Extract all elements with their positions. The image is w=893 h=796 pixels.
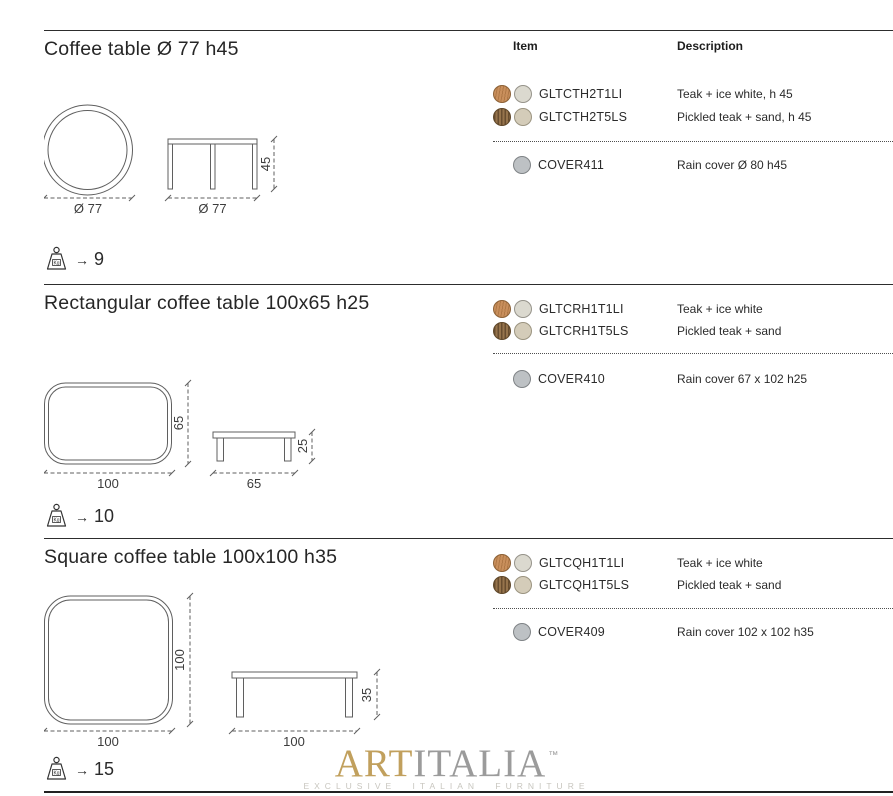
swatch-ice-white-icon [514, 300, 532, 318]
section-title: Coffee table Ø 77 h45 [44, 38, 239, 61]
swatch-teak-icon [493, 554, 511, 572]
plan-view-outline [45, 596, 173, 724]
separator-line [44, 284, 893, 285]
cover-row: COVER410 [513, 369, 605, 389]
swatch-pickled-teak-icon [493, 322, 511, 340]
kg-label: Kg [53, 260, 59, 266]
plan-view-inner-outline [48, 111, 127, 190]
catalog-page: Item Description Coffee table Ø 77 h45 Ø… [0, 0, 893, 796]
dimension-label: 35 [359, 688, 374, 702]
separator-line [44, 30, 893, 31]
swatch-pickled-teak-icon [493, 108, 511, 126]
dimension-label: 100 [172, 649, 187, 671]
swatch-rain-cover-icon [513, 370, 531, 388]
weight-kg-icon: Kg [44, 246, 69, 273]
plan-view-inner-outline [49, 387, 168, 460]
dotted-divider [493, 608, 893, 609]
cover-row: COVER409 [513, 622, 605, 642]
swatch-teak-icon [493, 300, 511, 318]
item-row: GLTCRH1T5LS [493, 321, 629, 341]
arrow-icon: → [75, 252, 89, 268]
technical-drawing-square-table: 100 100 100 35 [44, 585, 404, 750]
item-code: GLTCRH1T1LI [539, 302, 624, 316]
brand-logo-italia: ITALIA [413, 742, 546, 785]
item-description: Teak + ice white [677, 299, 763, 319]
item-row: GLTCQH1T5LS [493, 575, 629, 595]
item-row: GLTCTH2T1LI [493, 84, 622, 104]
weight-value: 9 [94, 249, 104, 270]
technical-drawing-round-table: Ø 77 Ø 77 45 [44, 98, 294, 216]
brand-tagline: EXCLUSIVE ITALIAN FURNITURE [0, 781, 893, 791]
technical-drawing-rectangular-table: 100 65 65 25 [44, 372, 344, 497]
weight-value: 10 [94, 506, 114, 527]
side-view-top [168, 139, 257, 144]
swatch-sand-icon [514, 576, 532, 594]
arrow-icon: → [75, 509, 89, 525]
item-description: Pickled teak + sand, h 45 [677, 107, 811, 127]
dimension-label: 45 [258, 157, 273, 171]
item-code: GLTCTH2T5LS [539, 110, 627, 124]
side-view-top [232, 672, 357, 678]
dimension-label: 65 [247, 476, 261, 491]
item-code: GLTCQH1T1LI [539, 556, 624, 570]
swatch-teak-icon [493, 85, 511, 103]
item-row: GLTCRH1T1LI [493, 299, 624, 319]
column-header-description: Description [677, 39, 743, 53]
item-code: GLTCTH2T1LI [539, 87, 622, 101]
trademark-symbol: ™ [548, 750, 558, 761]
dimension-label: 100 [97, 476, 119, 491]
bottom-border-line [44, 791, 893, 793]
item-description: Pickled teak + sand [677, 321, 781, 341]
swatch-ice-white-icon [514, 554, 532, 572]
plan-view-outline [45, 383, 172, 464]
side-view-top [213, 432, 295, 438]
swatch-sand-icon [514, 322, 532, 340]
plan-view-inner-outline [49, 600, 169, 720]
weight-row: Kg → 10 [44, 503, 114, 530]
item-code: COVER410 [538, 372, 605, 386]
item-code: GLTCQH1T5LS [539, 578, 629, 592]
dotted-divider [493, 141, 893, 142]
section-title: Rectangular coffee table 100x65 h25 [44, 292, 369, 315]
item-description: Teak + ice white [677, 553, 763, 573]
swatch-sand-icon [514, 108, 532, 126]
swatch-ice-white-icon [514, 85, 532, 103]
item-code: COVER411 [538, 158, 604, 172]
weight-row: Kg → 9 [44, 246, 104, 273]
section-title: Square coffee table 100x100 h35 [44, 546, 337, 569]
item-row: GLTCTH2T5LS [493, 107, 627, 127]
kg-label: Kg [53, 517, 59, 523]
item-code: GLTCRH1T5LS [539, 324, 629, 338]
item-description: Teak + ice white, h 45 [677, 84, 793, 104]
separator-line [44, 538, 893, 539]
dimension-label: Ø 77 [74, 201, 102, 216]
item-description: Rain cover 67 x 102 h25 [677, 369, 807, 389]
item-code: COVER409 [538, 625, 605, 639]
item-description: Pickled teak + sand [677, 575, 781, 595]
item-description: Rain cover Ø 80 h45 [677, 155, 787, 175]
cover-row: COVER411 [513, 155, 604, 175]
item-description: Rain cover 102 x 102 h35 [677, 622, 814, 642]
swatch-rain-cover-icon [513, 623, 531, 641]
plan-view-outline [44, 105, 133, 195]
item-row: GLTCQH1T1LI [493, 553, 624, 573]
brand-logo: ARTITALIA™ [0, 744, 893, 783]
column-header-item: Item [513, 39, 538, 53]
dimension-label: Ø 77 [198, 201, 226, 216]
brand-logo-art: ART [335, 742, 414, 785]
dotted-divider [493, 353, 893, 354]
dimension-label: 25 [295, 439, 310, 453]
swatch-pickled-teak-icon [493, 576, 511, 594]
swatch-rain-cover-icon [513, 156, 531, 174]
weight-kg-icon: Kg [44, 503, 69, 530]
dimension-label: 65 [171, 416, 186, 430]
